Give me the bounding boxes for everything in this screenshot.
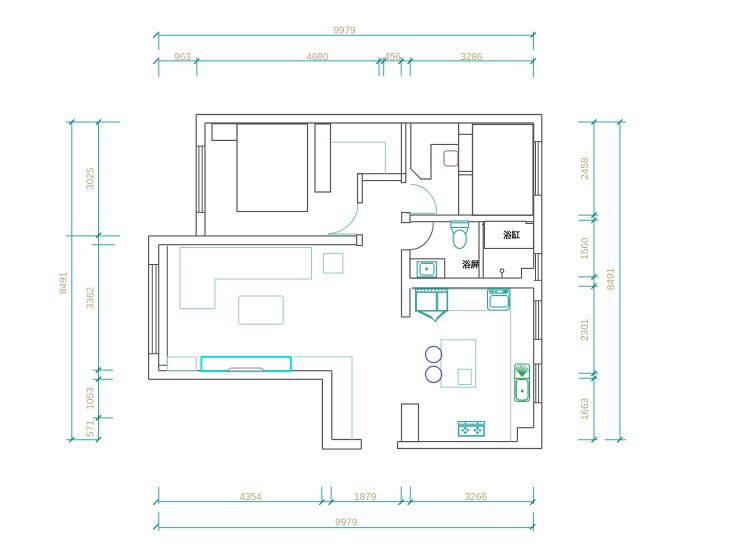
svg-text:3286: 3286: [460, 52, 483, 63]
svg-text:浴缸: 浴缸: [503, 230, 521, 240]
svg-text:963: 963: [174, 52, 191, 63]
svg-text:9979: 9979: [333, 26, 356, 37]
svg-text:4354: 4354: [239, 492, 262, 503]
svg-text:9979: 9979: [335, 518, 358, 529]
svg-text:8491: 8491: [606, 267, 617, 290]
svg-text:4680: 4680: [306, 52, 329, 63]
svg-text:1560: 1560: [580, 237, 591, 260]
svg-text:3266: 3266: [465, 492, 488, 503]
svg-text:2301: 2301: [580, 318, 591, 341]
svg-text:浴屏: 浴屏: [462, 259, 480, 269]
svg-text:1053: 1053: [86, 387, 97, 410]
svg-text:456: 456: [384, 52, 401, 63]
svg-text:8491: 8491: [59, 271, 70, 294]
svg-text:3025: 3025: [86, 167, 97, 190]
svg-text:1879: 1879: [354, 492, 377, 503]
svg-text:3362: 3362: [86, 286, 97, 309]
svg-text:571: 571: [86, 420, 97, 437]
svg-text:1663: 1663: [580, 397, 591, 420]
svg-text:2458: 2458: [580, 157, 591, 180]
